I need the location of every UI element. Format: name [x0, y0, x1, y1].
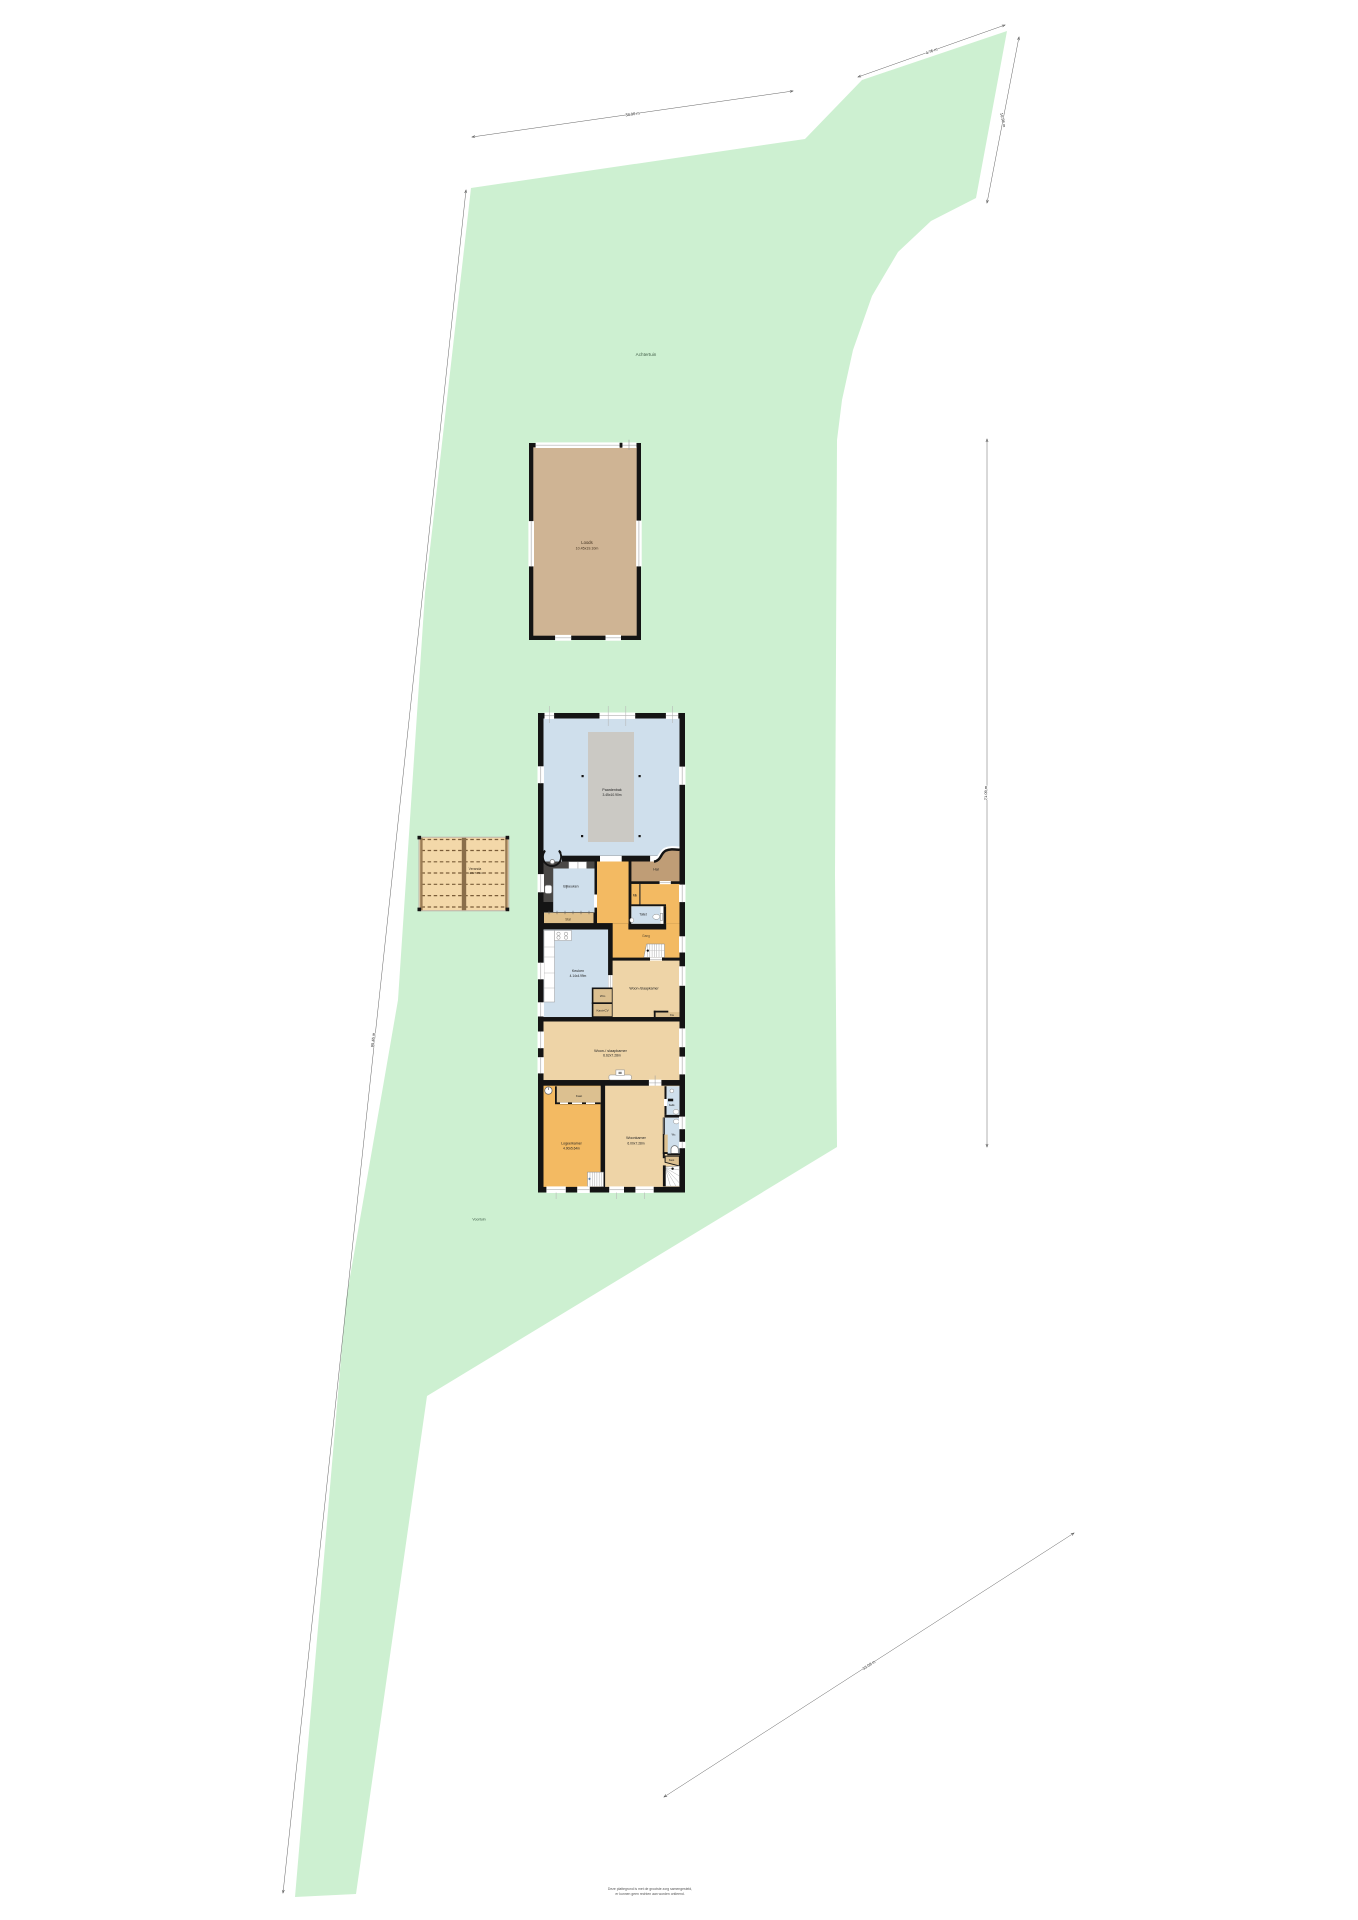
svg-text:Woonkamer: Woonkamer — [626, 1136, 647, 1140]
svg-text:Gang: Gang — [642, 934, 650, 938]
svg-text:71.09 m: 71.09 m — [983, 785, 988, 800]
svg-text:Keuken: Keuken — [572, 969, 584, 973]
svg-text:Bijkeuken: Bijkeuken — [563, 885, 578, 889]
svg-text:Kast+CV: Kast+CV — [596, 1009, 609, 1013]
svg-text:6.00x7.28m: 6.00x7.28m — [627, 1142, 644, 1146]
svg-text:Stal: Stal — [565, 917, 571, 921]
svg-text:Logeerkamer: Logeerkamer — [561, 1142, 582, 1146]
svg-text:er kunnen geen rechten aan wor: er kunnen geen rechten aan worden ontlee… — [615, 1892, 684, 1896]
svg-text:Loods: Loods — [581, 540, 592, 545]
svg-text:badk.: badk. — [669, 1103, 676, 1107]
svg-text:Veranda: Veranda — [469, 867, 482, 871]
svg-text:Hal: Hal — [653, 867, 659, 871]
svg-text:4.14x4.99m: 4.14x4.99m — [570, 974, 587, 978]
svg-text:Toilet: Toilet — [639, 913, 647, 917]
svg-text:Deze plattegrond is met de gro: Deze plattegrond is met de grootste zorg… — [608, 1887, 692, 1891]
svg-text:Voortuin: Voortuin — [472, 1217, 485, 1221]
svg-text:3.45x10.90m: 3.45x10.90m — [602, 793, 621, 797]
svg-text:4.90x5.64m: 4.90x5.64m — [563, 1147, 580, 1151]
svg-text:Mk: Mk — [633, 894, 638, 898]
svg-text:Kast: Kast — [669, 1158, 675, 1162]
svg-text:6.62x7.28m: 6.62x7.28m — [603, 1054, 621, 1058]
svg-text:Paardenbak: Paardenbak — [602, 788, 622, 792]
svg-text:Wm: Wm — [600, 994, 606, 998]
svg-text:10.45x19.10m: 10.45x19.10m — [576, 547, 599, 551]
svg-text:Kast: Kast — [576, 1094, 582, 1098]
svg-text:4.20x7.70m: 4.20x7.70m — [467, 871, 483, 875]
svg-text:Woon-/ slaapkamer: Woon-/ slaapkamer — [594, 1049, 628, 1053]
svg-text:Woon-/slaapkamer: Woon-/slaapkamer — [629, 987, 659, 991]
svg-text:Achtertuin: Achtertuin — [636, 352, 657, 357]
